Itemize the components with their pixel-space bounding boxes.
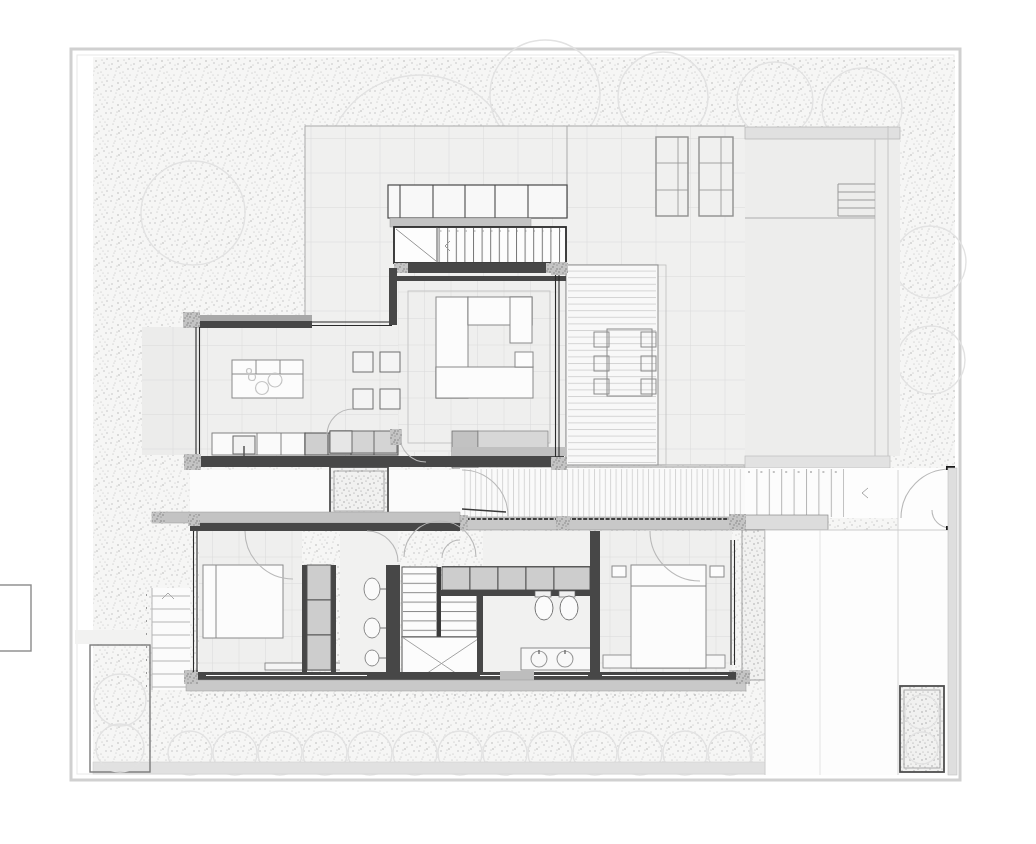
- wardrobe-units-1: [302, 565, 336, 673]
- bedroom-2: [600, 531, 735, 672]
- outdoor-deck: [566, 265, 666, 465]
- garden-steps: [147, 588, 191, 690]
- driveway-planter: [900, 686, 944, 772]
- upper-courtyard: [745, 127, 900, 468]
- bed-1: [203, 565, 283, 638]
- floor-plan-canvas: [0, 0, 1036, 844]
- wardrobe-units-2: [442, 567, 590, 590]
- floor-plan-drawing: [0, 0, 1036, 844]
- walkway-platform: [745, 515, 828, 530]
- walkway-landing: [845, 468, 903, 518]
- upper-staircase: [390, 218, 568, 281]
- stone-wall: [742, 530, 765, 680]
- kitchen-island: [232, 360, 303, 398]
- paver-row: [388, 185, 567, 218]
- courtyard-top-band: [745, 127, 900, 139]
- living-room: [398, 281, 558, 468]
- courtyard-bottom-band: [745, 456, 890, 468]
- hall-planter: [330, 467, 388, 515]
- east-boundary-band: [948, 468, 957, 775]
- legend-box: [0, 585, 31, 651]
- hall-cabinets: [330, 431, 397, 453]
- wing-south-wall: [184, 670, 750, 695]
- garden-path: [75, 630, 152, 644]
